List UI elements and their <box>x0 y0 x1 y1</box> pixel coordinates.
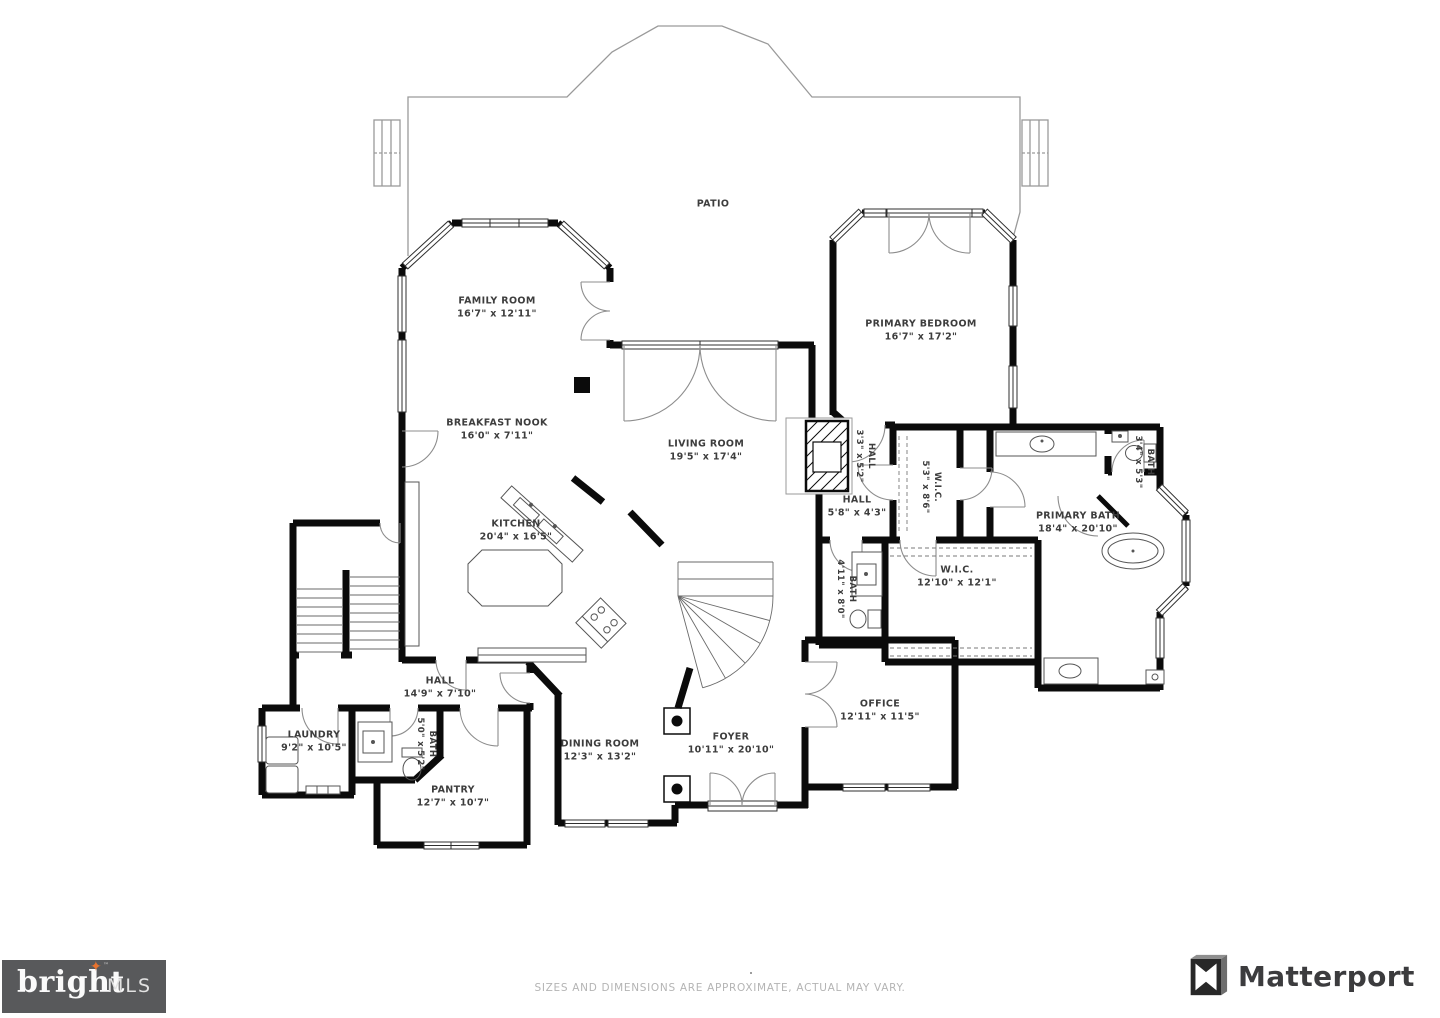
room-name: PATIO <box>697 198 730 209</box>
bright-mls-star-icon: ✦ <box>90 959 102 975</box>
room-label-primary-bath: PRIMARY BATH18'4" x 20'10" <box>1036 510 1120 537</box>
room-dimensions: 3'4" x 5'3" <box>1131 436 1143 489</box>
room-name: OFFICE <box>860 699 900 710</box>
room-dimensions: 9'2" x 10'5" <box>281 742 347 755</box>
room-name: BATH <box>1145 449 1155 476</box>
room-label-breakfast-nook: BREAKFAST NOOK16'0" x 7'11" <box>446 417 548 444</box>
room-label-bath-hall: BATH4'11" x 8'0" <box>833 559 857 618</box>
room-name: FOYER <box>713 732 750 743</box>
room-dimensions: 16'7" x 17'2" <box>865 331 976 344</box>
room-label-wic-large: W.I.C.12'10" x 12'1" <box>917 564 997 591</box>
room-name: FAMILY ROOM <box>458 296 535 307</box>
room-label-hall-lower: HALL14'9" x 7'10" <box>404 675 477 702</box>
room-label-office: OFFICE12'11" x 11'5" <box>840 698 920 725</box>
room-label-living-room: LIVING ROOM19'5" x 17'4" <box>668 438 744 465</box>
room-dimensions: 5'0" x 5'2" <box>413 718 425 771</box>
room-dimensions: 3'3" x 5'2" <box>852 430 864 483</box>
matterport-icon <box>1183 951 1229 1001</box>
room-label-pantry: PANTRY12'7" x 10'7" <box>417 784 490 811</box>
room-label-patio: PATIO <box>697 197 730 210</box>
room-dimensions: 19'5" x 17'4" <box>668 451 744 464</box>
room-name: HALL <box>866 443 876 469</box>
room-name: BATH <box>847 576 857 603</box>
living-pillar <box>574 377 590 393</box>
room-dimensions: 10'11" x 20'10" <box>688 744 775 757</box>
room-name: W.I.C. <box>940 565 973 576</box>
floorplan-drawing <box>0 0 1440 1018</box>
floorplan-page: PATIOFAMILY ROOM16'7" x 12'11"PRIMARY BE… <box>0 0 1440 1018</box>
room-dimensions: 18'4" x 20'10" <box>1036 523 1120 536</box>
room-name: BATH <box>427 731 437 758</box>
room-label-kitchen: KITCHEN20'4" x 16'5" <box>480 518 553 545</box>
room-name: LIVING ROOM <box>668 439 744 450</box>
room-name: LAUNDRY <box>288 730 341 741</box>
room-label-laundry: LAUNDRY9'2" x 10'5" <box>281 729 347 756</box>
room-name: BREAKFAST NOOK <box>446 418 548 429</box>
bright-mls-suffix: MLS <box>107 975 152 997</box>
room-label-hall-inner: HALL3'3" x 5'2" <box>852 430 876 483</box>
room-dimensions: 5'8" x 4'3" <box>828 507 887 520</box>
room-dimensions: 5'3" x 8'6" <box>918 461 930 514</box>
room-dimensions: 12'7" x 10'7" <box>417 797 490 810</box>
foyer-columns <box>664 668 690 802</box>
room-dimensions: 12'10" x 12'1" <box>917 577 997 590</box>
room-name: HALL <box>426 676 455 687</box>
matterport-logo: Matterport <box>1183 951 1415 1001</box>
room-dimensions: 4'11" x 8'0" <box>833 559 845 618</box>
room-name: PANTRY <box>431 785 475 796</box>
room-dimensions: 16'0" x 7'11" <box>446 430 548 443</box>
door-swings <box>302 213 1144 805</box>
room-label-primary-bedroom: PRIMARY BEDROOM16'7" x 17'2" <box>865 318 976 345</box>
room-name: HALL <box>843 495 872 506</box>
closet-rods <box>890 436 1032 656</box>
room-name: KITCHEN <box>491 519 540 530</box>
room-dimensions: 14'9" x 7'10" <box>404 688 477 701</box>
room-name: DINING ROOM <box>561 739 640 750</box>
room-dimensions: 12'11" x 11'5" <box>840 711 920 724</box>
room-name: PRIMARY BEDROOM <box>865 319 976 330</box>
room-label-foyer: FOYER10'11" x 20'10" <box>688 731 775 758</box>
room-label-hall-upper: HALL5'8" x 4'3" <box>828 494 887 521</box>
fireplace <box>786 418 852 494</box>
room-dimensions: 12'3" x 13'2" <box>561 751 640 764</box>
room-label-family-room: FAMILY ROOM16'7" x 12'11" <box>457 295 537 322</box>
room-name: W.I.C. <box>932 472 942 502</box>
room-label-wic-small: W.I.C.5'3" x 8'6" <box>918 461 942 514</box>
bright-mls-logo: bright ✦ ™ MLS <box>2 960 166 1013</box>
room-label-bath-small: BATH3'4" x 5'3" <box>1131 436 1155 489</box>
bright-mls-tm: ™ <box>103 962 109 969</box>
room-label-dining-room: DINING ROOM12'3" x 13'2" <box>561 738 640 765</box>
footer-dot <box>750 972 752 974</box>
room-dimensions: 20'4" x 16'5" <box>480 531 553 544</box>
room-dimensions: 16'7" x 12'11" <box>457 308 537 321</box>
room-name: PRIMARY BATH <box>1036 511 1120 522</box>
matterport-wordmark: Matterport <box>1238 960 1415 993</box>
room-label-bath-lower: BATH5'0" x 5'2" <box>413 718 437 771</box>
